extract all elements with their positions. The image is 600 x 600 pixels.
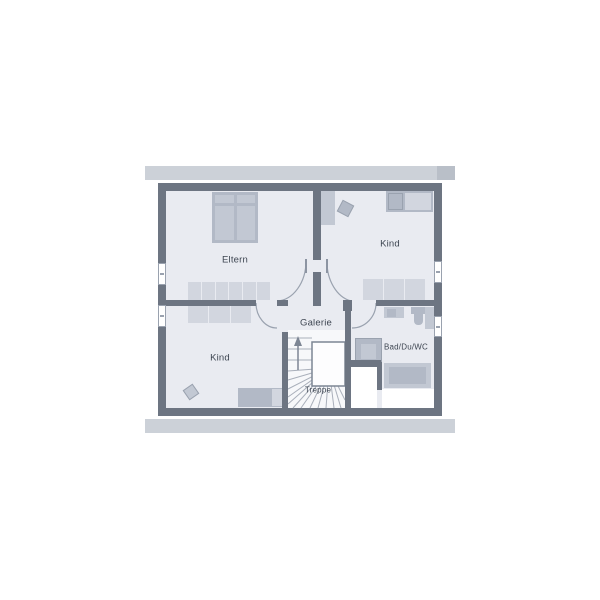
window-tick: [436, 326, 440, 328]
room-label-stairs: Treppe: [305, 386, 331, 395]
floorplan-canvas: Eltern Kind Kind Bad/Du/WC Galerie Trepp…: [0, 0, 600, 600]
wall-bath-top: [376, 300, 434, 306]
window-child-bottom: [158, 305, 166, 327]
window-tick: [436, 271, 440, 273]
wall-divider-parents-child: [313, 191, 321, 260]
room-label-gallery: Galerie: [300, 318, 332, 329]
door-arc-child-bottom: [256, 303, 277, 328]
window-bath: [434, 316, 442, 337]
wall-door-stub: [313, 272, 321, 306]
door-arc-parents: [277, 261, 306, 301]
wall-stair-left: [282, 332, 288, 408]
room-label-bath: Bad/Du/WC: [384, 343, 428, 352]
door-arc-bath: [352, 303, 376, 328]
stairs-and-doors-overlay: [0, 0, 600, 600]
wall-mid-hinge-stub: [277, 300, 288, 306]
window-parents: [158, 263, 166, 285]
door-arc-child-top: [327, 261, 351, 301]
window-tick: [160, 315, 164, 317]
window-tick: [160, 273, 164, 275]
room-label-child-top: Kind: [380, 239, 400, 250]
window-child-top: [434, 261, 442, 283]
wall-stair-right: [345, 306, 351, 408]
wall-mid-left: [166, 300, 256, 306]
void-area-bottom: [382, 389, 434, 408]
room-label-parents: Eltern: [222, 255, 248, 266]
void-area-left: [351, 367, 377, 408]
wall-bath-inner-vertical: [377, 362, 382, 390]
room-label-child-bottom: Kind: [210, 353, 230, 364]
stairwell-void: [312, 342, 345, 386]
